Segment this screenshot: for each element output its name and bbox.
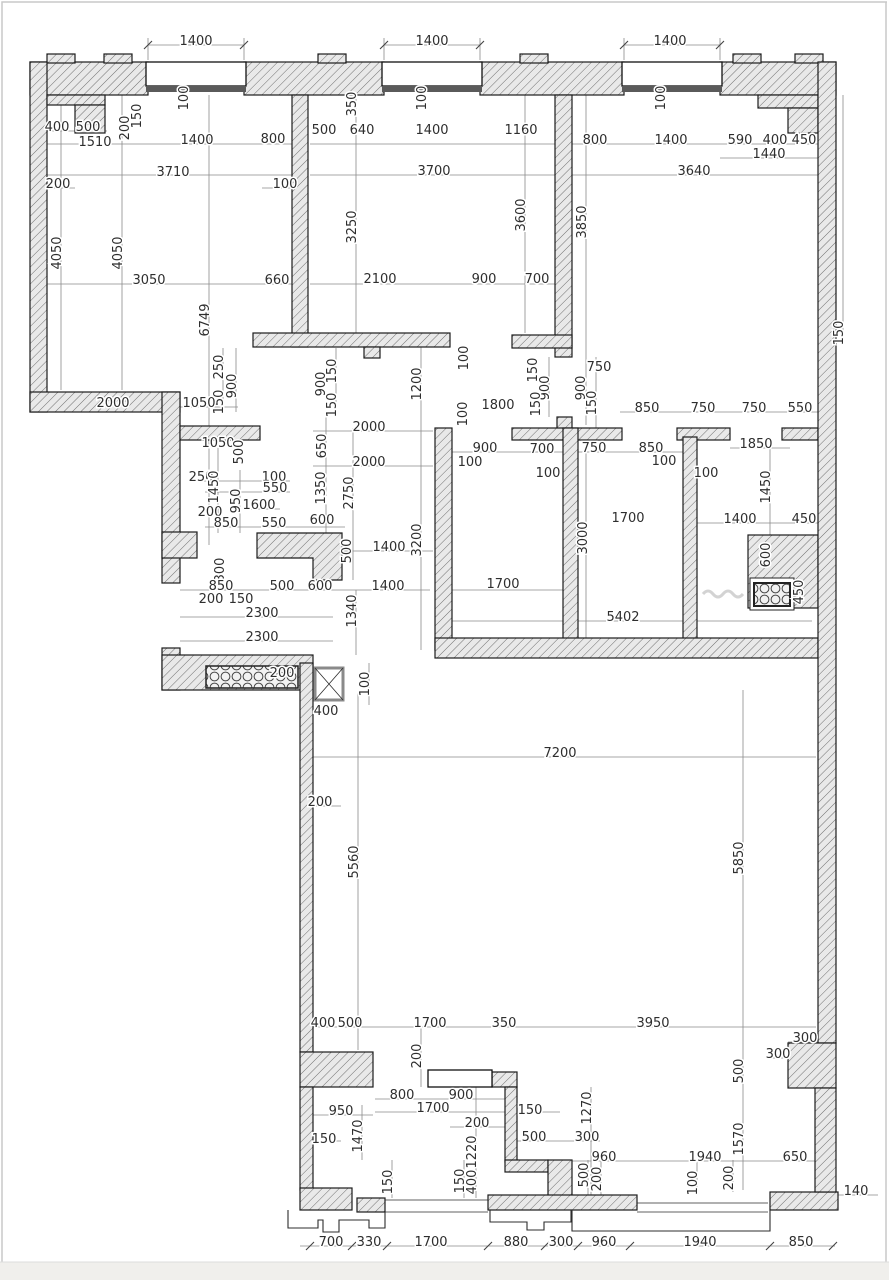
window-3 (622, 62, 722, 86)
dim-label: 900 (472, 272, 497, 287)
dim-label: 300 (575, 1130, 600, 1145)
dim-label: 900 (473, 441, 498, 456)
dim-label: 1400 (179, 34, 212, 49)
dim-label: 200 (722, 1166, 737, 1191)
dim-label: 800 (390, 1088, 415, 1103)
dim-label: 200 (118, 116, 133, 141)
dim-label: 3200 (410, 523, 425, 556)
dim-label: 300 (766, 1047, 791, 1062)
dim-label: 150 (585, 391, 600, 416)
dim-label: 850 (789, 1235, 814, 1250)
dim-label: 700 (530, 442, 555, 457)
dim-label: 330 (357, 1235, 382, 1250)
dim-label: 880 (504, 1235, 529, 1250)
dim-label: 1450 (759, 470, 774, 503)
dim-label: 300 (549, 1235, 574, 1250)
dim-label: 100 (458, 455, 483, 470)
dim-label: 800 (583, 133, 608, 148)
dim-label: 450 (792, 512, 817, 527)
dim-label: 1400 (653, 34, 686, 49)
dim-label: 2000 (352, 420, 385, 435)
dim-label: 550 (788, 401, 813, 416)
dim-label: 1700 (413, 1016, 446, 1031)
dim-label: 3700 (417, 164, 450, 179)
dim-label: 350 (345, 92, 360, 117)
dim-label: 100 (652, 454, 677, 469)
dim-label: 450 (792, 133, 817, 148)
dim-label: 150 (518, 1103, 543, 1118)
dim-label: 150 (325, 393, 340, 418)
dim-label: 1400 (415, 123, 448, 138)
windows (146, 62, 722, 1087)
dim-label: 1340 (345, 594, 360, 627)
footer-band (0, 1262, 889, 1280)
dim-label: 150 (453, 1169, 468, 1194)
dim-label: 900 (225, 374, 240, 399)
dim-label: 1510 (78, 135, 111, 150)
dim-label: 600 (310, 513, 335, 528)
dim-label: 2750 (342, 476, 357, 509)
dim-label: 150 (832, 321, 847, 346)
dim-label: 750 (691, 401, 716, 416)
dim-label: 700 (319, 1235, 344, 1250)
dim-label: 200 (270, 666, 295, 681)
dim-label: 1160 (504, 123, 537, 138)
dim-label: 1800 (481, 398, 514, 413)
dim-label: 1450 (207, 470, 222, 503)
dim-label: 5402 (606, 610, 639, 625)
dim-label: 750 (587, 360, 612, 375)
dim-label: 1220 (465, 1135, 480, 1168)
dim-label: 750 (742, 401, 767, 416)
dim-label: 2000 (352, 455, 385, 470)
dim-label: 500 (76, 120, 101, 135)
dim-label: 1400 (723, 512, 756, 527)
dim-label: 590 (728, 133, 753, 148)
dim-label: 1050 (201, 436, 234, 451)
dim-label: 200 (410, 1044, 425, 1069)
dim-label: 3710 (156, 165, 189, 180)
floor-plan-svg: 1400140014001001502004005001510140080035… (0, 0, 889, 1280)
dim-label: 150 (381, 1170, 396, 1195)
dim-label: 100 (694, 466, 719, 481)
dim-label: 2000 (96, 396, 129, 411)
dim-label: 1700 (486, 577, 519, 592)
dim-label: 100 (358, 672, 373, 697)
dim-label: 1700 (611, 511, 644, 526)
dim-label: 7200 (543, 746, 576, 761)
dim-label: 660 (265, 273, 290, 288)
dim-label: 140 (844, 1184, 869, 1199)
dim-label: 1700 (416, 1101, 449, 1116)
dim-label: 3250 (345, 210, 360, 243)
dim-label: 5850 (732, 841, 747, 874)
dim-label: 900 (449, 1088, 474, 1103)
dim-label: 1940 (688, 1150, 721, 1165)
dim-label: 500 (522, 1130, 547, 1145)
dim-label: 3950 (636, 1016, 669, 1031)
dim-label: 2300 (245, 630, 278, 645)
dim-label: 640 (350, 123, 375, 138)
dim-label: 3640 (677, 164, 710, 179)
dim-label: 5560 (347, 845, 362, 878)
dim-label: 100 (415, 86, 430, 111)
dim-label: 700 (525, 272, 550, 287)
dim-label: 1440 (752, 147, 785, 162)
dim-label: 1570 (732, 1122, 747, 1155)
walls (30, 54, 838, 1212)
dim-label: 6749 (198, 303, 213, 336)
dim-label: 3000 (576, 521, 591, 554)
dim-label: 3600 (514, 198, 529, 231)
dim-label: 1600 (242, 498, 275, 513)
dim-label: 550 (263, 481, 288, 496)
dim-label: 3850 (575, 205, 590, 238)
dim-label: 4050 (50, 236, 65, 269)
dim-label: 750 (582, 441, 607, 456)
dim-label: 550 (262, 516, 287, 531)
dim-label: 960 (592, 1235, 617, 1250)
kitchen-window (428, 1070, 492, 1087)
dim-label: 400 (311, 1016, 336, 1031)
dim-label: 1350 (314, 471, 329, 504)
dim-label: 100 (654, 86, 669, 111)
dim-label: 600 (308, 579, 333, 594)
dim-label: 200 (465, 1116, 490, 1131)
dim-label: 500 (312, 123, 337, 138)
dim-label: 1940 (683, 1235, 716, 1250)
floor-plan-page: 1400140014001001502004005001510140080035… (0, 0, 889, 1280)
dim-label: 850 (214, 516, 239, 531)
dim-label: 350 (492, 1016, 517, 1031)
dim-label: 300 (793, 1031, 818, 1046)
dim-label: 400 (763, 133, 788, 148)
dim-label: 2300 (245, 606, 278, 621)
window-1 (146, 62, 246, 86)
dim-label: 1050 (182, 396, 215, 411)
dim-label: 100 (686, 1171, 701, 1196)
vent-grille-icon (754, 583, 790, 606)
dim-label: 650 (315, 434, 330, 459)
dim-label: 100 (273, 177, 298, 192)
dim-label: 1700 (414, 1235, 447, 1250)
dim-label: 1200 (410, 367, 425, 400)
dim-label: 400 (314, 704, 339, 719)
dim-label: 800 (261, 132, 286, 147)
dim-label: 150 (312, 1132, 337, 1147)
dim-label: 1470 (351, 1119, 366, 1152)
dim-label: 500 (232, 440, 247, 465)
dim-label: 200 (308, 795, 333, 810)
dim-label: 100 (456, 402, 471, 427)
dim-label: 150 (529, 392, 544, 417)
dim-label: 1400 (371, 579, 404, 594)
dim-label: 500 (338, 1016, 363, 1031)
watermark-squiggle (703, 591, 743, 597)
window-2 (382, 62, 482, 86)
dim-label: 1400 (654, 133, 687, 148)
dim-label: 4050 (111, 236, 126, 269)
dim-label: 1400 (415, 34, 448, 49)
dim-label: 1850 (739, 437, 772, 452)
dim-label: 2100 (363, 272, 396, 287)
dim-label: 1400 (180, 133, 213, 148)
dim-label: 200 (590, 1167, 605, 1192)
dim-label: 850 (635, 401, 660, 416)
dim-label: 3050 (132, 273, 165, 288)
dim-label: 400 (45, 120, 70, 135)
dim-label: 200 (199, 592, 224, 607)
dim-label: 1270 (580, 1091, 595, 1124)
dim-label: 650 (783, 1150, 808, 1165)
dim-label: 500 (270, 579, 295, 594)
dim-label: 1400 (372, 540, 405, 555)
dim-label: 450 (792, 580, 807, 605)
dim-label: 600 (759, 543, 774, 568)
dim-label: 100 (536, 466, 561, 481)
dim-label: 500 (340, 539, 355, 564)
dim-label: 960 (592, 1150, 617, 1165)
dim-label: 100 (457, 346, 472, 371)
dim-label: 150 (229, 592, 254, 607)
dim-label: 500 (732, 1059, 747, 1084)
dim-label: 100 (177, 86, 192, 111)
dim-label: 200 (46, 177, 71, 192)
dim-label: 950 (329, 1104, 354, 1119)
